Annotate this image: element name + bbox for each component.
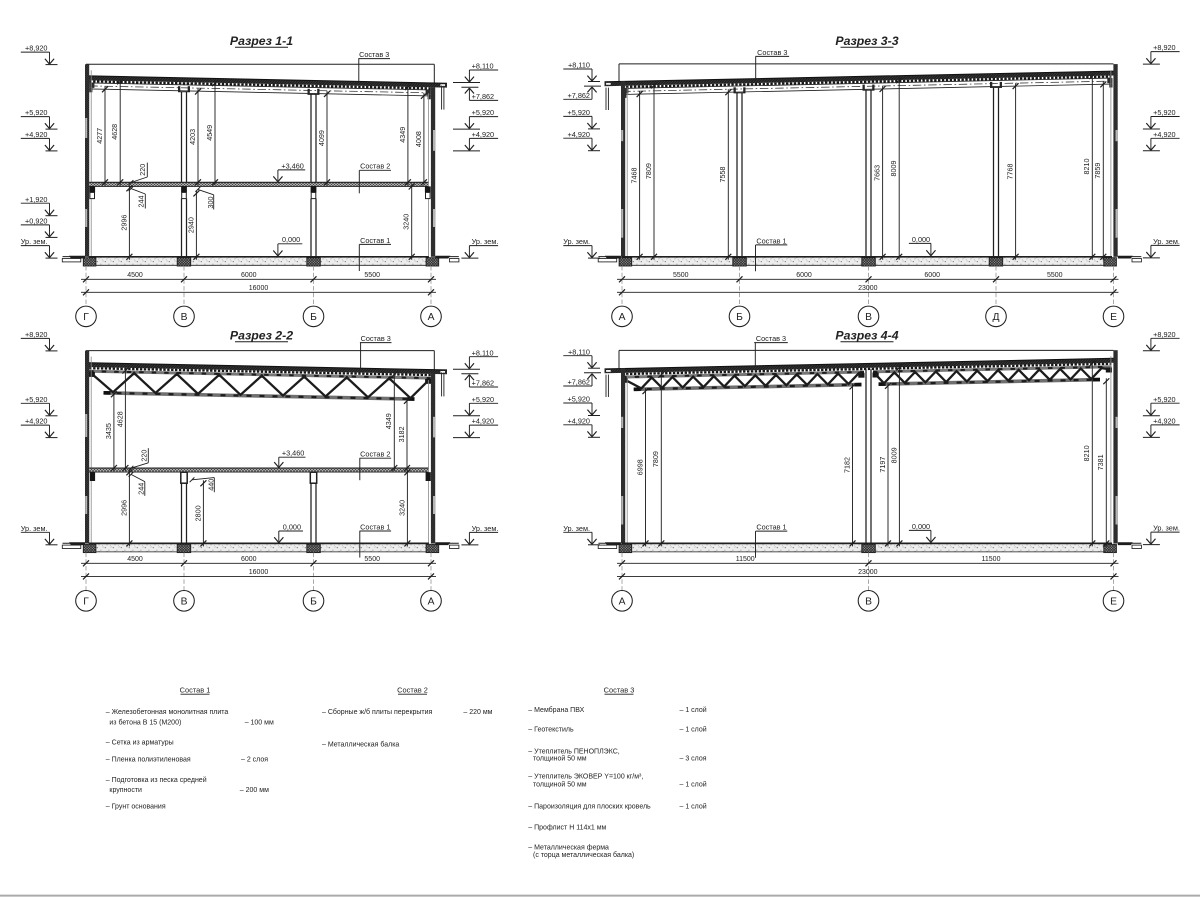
svg-text:244: 244 — [136, 483, 145, 495]
svg-text:из бетона В 15 (М200): из бетона В 15 (М200) — [109, 719, 181, 727]
svg-text:+4,920: +4,920 — [25, 130, 48, 139]
svg-text:4008: 4008 — [414, 131, 423, 147]
svg-text:+0,920: +0,920 — [25, 217, 48, 226]
svg-text:– Грунт основания: – Грунт основания — [106, 804, 166, 811]
svg-text:– Железобетонная монолитная п: – Железобетонная монолитная плита — [106, 708, 229, 716]
svg-text:В: В — [865, 312, 872, 323]
svg-text:толщиной 50 мм: толщиной 50 мм — [533, 780, 587, 788]
svg-text:+3,460: +3,460 — [281, 161, 304, 170]
svg-text:+8,920: +8,920 — [1153, 330, 1176, 339]
svg-text:4349: 4349 — [398, 127, 407, 143]
svg-text:5500: 5500 — [1047, 272, 1063, 279]
svg-text:3182: 3182 — [397, 426, 406, 442]
svg-text:Состав 3: Состав 3 — [361, 334, 391, 343]
svg-text:0,000: 0,000 — [282, 235, 300, 244]
svg-text:– Пароизоляция для плоских кро: – Пароизоляция для плоских кровель — [528, 803, 651, 810]
svg-text:+7,862: +7,862 — [567, 378, 590, 387]
svg-text:23000: 23000 — [858, 285, 878, 292]
svg-text:+8,110: +8,110 — [568, 347, 590, 356]
svg-text:– 200 мм: – 200 мм — [240, 787, 269, 794]
svg-text:7381: 7381 — [1096, 454, 1105, 470]
svg-text:Ур. зем.: Ур. зем. — [563, 237, 590, 246]
svg-text:Д: Д — [993, 312, 1000, 323]
svg-text:Разрез 3-3: Разрез 3-3 — [835, 34, 898, 48]
svg-text:Разрез 4-4: Разрез 4-4 — [835, 329, 898, 343]
svg-text:– Металлическая ферма: – Металлическая ферма — [528, 845, 609, 852]
svg-text:7182: 7182 — [842, 457, 851, 473]
svg-text:В: В — [865, 597, 872, 608]
svg-text:0,000: 0,000 — [912, 522, 930, 531]
svg-text:– 1 слой: – 1 слой — [680, 706, 707, 714]
svg-text:7558: 7558 — [718, 167, 727, 183]
svg-text:– Подготовка из песка средней: – Подготовка из песка средней — [106, 776, 207, 784]
svg-text:4549: 4549 — [205, 125, 214, 141]
svg-text:3240: 3240 — [397, 500, 406, 516]
svg-text:23000: 23000 — [858, 569, 878, 576]
svg-text:– Пленка полиэтиленовая: – Пленка полиэтиленовая — [106, 757, 191, 764]
svg-text:7809: 7809 — [644, 163, 653, 179]
svg-text:Ур. зем.: Ур. зем. — [472, 237, 499, 246]
svg-text:– Сборные ж/б плиты перекрытия: – Сборные ж/б плиты перекрытия — [322, 708, 433, 716]
svg-text:8009: 8009 — [889, 447, 898, 463]
svg-text:(с торца металлическая балка): (с торца металлическая балка) — [533, 851, 634, 859]
svg-text:16000: 16000 — [249, 569, 269, 576]
svg-text:+5,920: +5,920 — [25, 395, 48, 404]
svg-text:В: В — [181, 597, 188, 608]
svg-text:244: 244 — [137, 196, 146, 208]
svg-text:Ур. зем.: Ур. зем. — [472, 524, 499, 533]
svg-text:+4,920: +4,920 — [25, 417, 48, 426]
svg-text:2996: 2996 — [119, 500, 128, 516]
svg-text:Состав 1: Состав 1 — [360, 522, 390, 531]
svg-text:7809: 7809 — [651, 451, 660, 467]
svg-text:7768: 7768 — [1006, 164, 1015, 180]
svg-text:Разрез 2-2: Разрез 2-2 — [230, 329, 293, 343]
svg-text:Состав 2: Состав 2 — [360, 162, 390, 171]
svg-text:А: А — [428, 312, 435, 323]
svg-text:+8,920: +8,920 — [25, 330, 48, 339]
svg-text:– Утеплитель ПЕНОПЛЭКС,: – Утеплитель ПЕНОПЛЭКС, — [528, 748, 619, 755]
svg-text:8210: 8210 — [1082, 159, 1091, 175]
svg-text:0,000: 0,000 — [912, 235, 930, 244]
svg-text:2940: 2940 — [186, 217, 195, 233]
svg-text:11500: 11500 — [982, 556, 1001, 563]
svg-text:+4,920: +4,920 — [567, 130, 590, 139]
svg-text:4099: 4099 — [317, 130, 326, 146]
svg-text:+5,920: +5,920 — [1153, 108, 1176, 117]
svg-text:4628: 4628 — [115, 411, 124, 427]
svg-text:5500: 5500 — [364, 272, 380, 279]
svg-text:Состав 1: Состав 1 — [756, 523, 786, 532]
svg-text:– Профлист Н 114х1 мм: – Профлист Н 114х1 мм — [528, 824, 606, 831]
svg-text:5500: 5500 — [673, 272, 689, 279]
svg-text:220: 220 — [138, 164, 147, 176]
svg-text:– 1 слой: – 1 слой — [680, 725, 707, 733]
svg-text:+8,110: +8,110 — [472, 348, 494, 357]
svg-text:+3,460: +3,460 — [282, 449, 305, 458]
svg-text:+8,110: +8,110 — [472, 62, 494, 71]
svg-text:4500: 4500 — [127, 556, 143, 563]
svg-text:11500: 11500 — [736, 556, 755, 563]
svg-text:2996: 2996 — [119, 215, 128, 231]
svg-text:А: А — [619, 312, 626, 323]
svg-text:А: А — [619, 597, 626, 608]
svg-text:Ур. зем.: Ур. зем. — [1153, 524, 1180, 533]
svg-text:+1,920: +1,920 — [25, 195, 48, 204]
svg-text:Состав 2: Состав 2 — [397, 685, 428, 694]
svg-text:6000: 6000 — [241, 272, 257, 279]
svg-text:Ур. зем.: Ур. зем. — [21, 524, 48, 533]
svg-text:+5,920: +5,920 — [25, 108, 48, 117]
svg-text:А: А — [428, 597, 435, 608]
svg-text:4628: 4628 — [110, 124, 119, 140]
svg-text:4500: 4500 — [127, 272, 143, 279]
svg-text:– 1 слой: – 1 слой — [680, 780, 707, 788]
svg-text:+5,920: +5,920 — [472, 108, 495, 117]
svg-text:3435: 3435 — [104, 423, 113, 439]
svg-text:+4,920: +4,920 — [567, 416, 590, 425]
svg-text:+5,920: +5,920 — [567, 108, 590, 117]
svg-text:8210: 8210 — [1082, 445, 1091, 461]
svg-text:– 3 слоя: – 3 слоя — [680, 756, 707, 763]
svg-text:+7,862: +7,862 — [472, 379, 495, 388]
svg-text:+4,920: +4,920 — [1153, 130, 1176, 139]
svg-text:Ур. зем.: Ур. зем. — [1153, 237, 1180, 246]
svg-text:– Мембрана ПВХ: – Мембрана ПВХ — [528, 706, 584, 714]
svg-text:Г: Г — [83, 312, 89, 323]
svg-text:7197: 7197 — [878, 457, 887, 473]
svg-text:Б: Б — [310, 312, 317, 323]
svg-text:Состав 1: Состав 1 — [360, 236, 390, 245]
svg-text:+5,920: +5,920 — [472, 395, 495, 404]
svg-text:4349: 4349 — [384, 413, 393, 429]
svg-text:+7,862: +7,862 — [567, 91, 590, 100]
svg-text:+4,920: +4,920 — [1153, 417, 1176, 426]
svg-text:4203: 4203 — [188, 129, 197, 145]
svg-text:– Геотекстиль: – Геотекстиль — [528, 726, 574, 733]
svg-text:5500: 5500 — [364, 556, 380, 563]
svg-text:4277: 4277 — [95, 128, 104, 144]
svg-text:Состав 3: Состав 3 — [756, 334, 786, 343]
svg-text:Разрез 1-1: Разрез 1-1 — [230, 34, 293, 48]
svg-text:220: 220 — [139, 450, 148, 462]
svg-text:6000: 6000 — [796, 272, 812, 279]
svg-text:Ур. зем.: Ур. зем. — [21, 237, 48, 246]
svg-text:толщиной 50 мм: толщиной 50 мм — [533, 755, 587, 763]
svg-text:– Утеплитель ЭКОВЕР Y=100 кг/м: – Утеплитель ЭКОВЕР Y=100 кг/м³, — [528, 774, 643, 781]
svg-text:Состав 1: Состав 1 — [756, 236, 786, 245]
svg-text:крупности: крупности — [109, 787, 142, 794]
svg-text:7468: 7468 — [630, 168, 639, 184]
svg-text:7663: 7663 — [873, 165, 882, 181]
svg-text:– Сетка из арматуры: – Сетка из арматуры — [106, 740, 174, 747]
svg-text:+8,920: +8,920 — [1153, 43, 1176, 52]
svg-text:0,000: 0,000 — [283, 522, 301, 531]
svg-text:+5,920: +5,920 — [1153, 395, 1176, 404]
svg-text:Состав 1: Состав 1 — [180, 685, 211, 694]
svg-text:6000: 6000 — [924, 272, 940, 279]
svg-text:Б: Б — [736, 312, 743, 323]
svg-text:3240: 3240 — [402, 214, 411, 230]
svg-text:Б: Б — [310, 597, 317, 608]
svg-text:Состав 3: Состав 3 — [359, 50, 389, 59]
svg-text:+8,920: +8,920 — [25, 44, 48, 53]
svg-text:Состав 2: Состав 2 — [360, 450, 390, 459]
svg-text:+5,920: +5,920 — [567, 395, 590, 404]
svg-text:+4,920: +4,920 — [472, 130, 495, 139]
svg-text:– 2 слоя: – 2 слоя — [241, 757, 268, 764]
svg-text:– Металлическая балка: – Металлическая балка — [322, 740, 399, 748]
svg-text:В: В — [181, 312, 188, 323]
svg-text:+7,862: +7,862 — [472, 92, 495, 101]
svg-text:6998: 6998 — [635, 459, 644, 475]
svg-text:– 220 мм: – 220 мм — [463, 709, 492, 716]
svg-text:7859: 7859 — [1093, 163, 1102, 179]
svg-text:+4,920: +4,920 — [472, 417, 495, 426]
svg-text:2800: 2800 — [193, 505, 202, 521]
svg-text:Е: Е — [1110, 597, 1117, 608]
svg-text:6000: 6000 — [241, 556, 257, 563]
svg-text:– 1 слой: – 1 слой — [680, 802, 707, 810]
svg-text:+8,110: +8,110 — [568, 61, 590, 70]
svg-text:Состав 3: Состав 3 — [757, 48, 787, 57]
svg-text:– 100 мм: – 100 мм — [245, 720, 274, 727]
svg-text:Е: Е — [1110, 312, 1117, 323]
svg-text:Ур. зем.: Ур. зем. — [563, 524, 590, 533]
svg-text:8009: 8009 — [889, 161, 898, 177]
svg-text:Состав 3: Состав 3 — [604, 685, 635, 694]
svg-text:Г: Г — [83, 597, 89, 608]
svg-text:16000: 16000 — [249, 285, 269, 292]
